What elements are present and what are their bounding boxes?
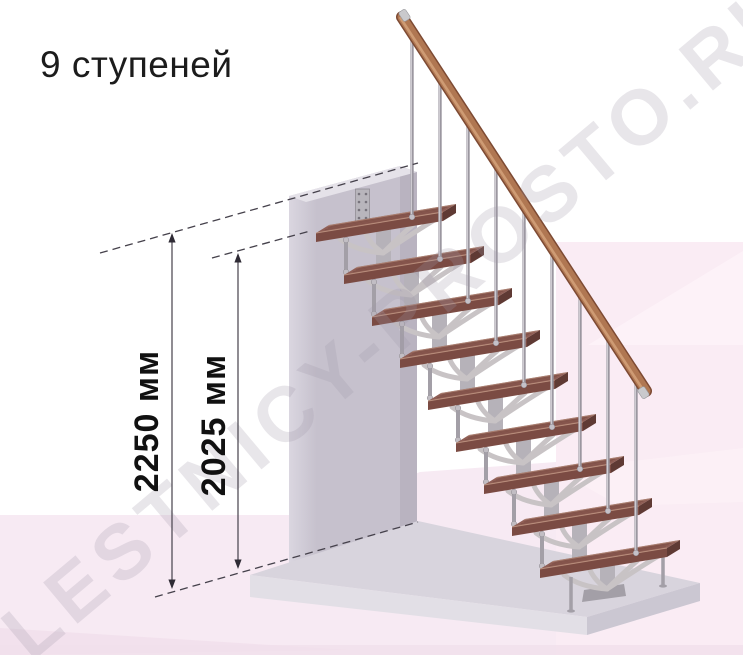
page-title: 9 ступеней: [40, 44, 233, 86]
dimension-label-steps-height: 2025 мм: [195, 330, 233, 520]
staircase-illustration: [0, 0, 743, 655]
staircase-diagram: LESTNICY-PROSTO.RU 2250 мм 2025 мм 9 сту…: [0, 0, 743, 655]
dimension-label-total-height: 2250 мм: [128, 326, 166, 516]
wall-mount-plate: [356, 189, 370, 223]
